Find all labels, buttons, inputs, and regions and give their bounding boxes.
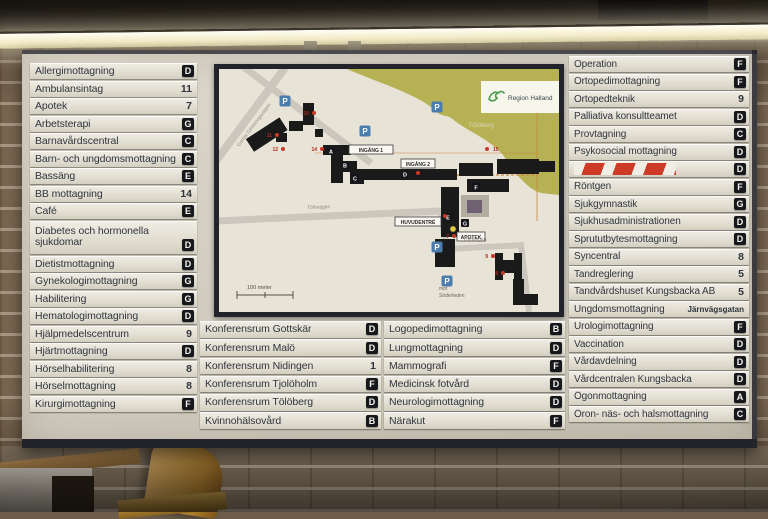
location-badge: 9: [738, 93, 746, 105]
svg-text:9: 9: [485, 254, 488, 260]
department-label: Medicinsk fotvård: [389, 378, 469, 390]
directory-row: D: [569, 161, 749, 177]
directory-row: Urologimottagning F: [569, 319, 749, 335]
location-badge: 11: [181, 83, 194, 95]
directory-row: Hörselhabilitering 8: [30, 361, 197, 377]
department-label: Dietistmottagning: [35, 258, 114, 270]
directory-row: Bassäng E: [30, 168, 197, 184]
location-badge: E: [182, 170, 194, 182]
department-label: Konferensrum Tjolöholm: [205, 378, 317, 390]
department-label: Mammografi: [389, 360, 446, 372]
directory-row: Kvinnohälsovård B: [200, 412, 381, 429]
directory-row: Barn- och ungdomsmottagning C: [30, 151, 197, 167]
location-badge: D: [182, 345, 194, 357]
department-label: Bassäng: [35, 170, 75, 182]
location-badge: D: [182, 258, 194, 270]
directory-row: Ortopedteknik 9: [569, 91, 749, 107]
directory-row: Hjärtmottagning D: [30, 343, 197, 359]
location-badge: F: [366, 378, 378, 390]
directory-row: Vårdavdelning D: [569, 354, 749, 370]
location-badge: D: [734, 111, 746, 123]
location-badge: D: [182, 310, 194, 322]
location-badge: D: [734, 216, 746, 228]
location-badge: D: [366, 323, 378, 335]
location-badge: F: [734, 58, 746, 70]
directory-row: Arbetsterapi G: [30, 116, 197, 132]
location-badge: C: [734, 408, 746, 420]
svg-text:INGÅNG 1: INGÅNG 1: [359, 147, 383, 154]
department-label: Apotek: [35, 100, 67, 112]
department-label: Kvinnohälsovård: [205, 415, 281, 427]
department-label: Konferensrum Nidingen: [205, 360, 313, 372]
department-label: Urologimottagning: [574, 321, 653, 332]
department-label: Ungdomsmottagning: [574, 304, 665, 315]
location-badge: Järnvägsgatan: [688, 305, 746, 314]
department-label: Ortopedteknik: [574, 94, 635, 105]
svg-text:A: A: [329, 150, 333, 156]
location-badge: D: [550, 342, 562, 354]
directory-row: Konferensrum Tölöberg D: [200, 394, 381, 411]
location-badge: 14: [180, 188, 194, 200]
directory-row: Ortopedimottagning F: [569, 74, 749, 90]
directory-row: Konferensrum Nidingen 1: [200, 358, 381, 375]
department-label: Hörselhabilitering: [35, 363, 114, 375]
directory-column-bottom-right: Logopedimottagning B Lungmottagning D Ma…: [384, 321, 565, 431]
directory-row: Barnavårdscentral C: [30, 133, 197, 149]
department-label: Vaccination: [574, 339, 624, 350]
svg-text:C: C: [353, 177, 357, 183]
location-badge: B: [366, 415, 378, 427]
directory-row: Allergimottagning D: [30, 63, 197, 79]
department-label: Palliativa konsultteamet: [574, 111, 677, 122]
department-label: Operation: [574, 59, 617, 70]
directory-row: Sjukhusadministrationen D: [569, 214, 749, 230]
entrance2-label: INGÅNG 2: [401, 159, 435, 168]
svg-text:100 meter: 100 meter: [247, 285, 272, 291]
svg-text:Tölövägen: Tölövägen: [463, 237, 487, 243]
department-label: Ambulansintag: [35, 83, 103, 95]
svg-text:Region Halland: Region Halland: [508, 95, 553, 102]
location-badge: 9: [186, 328, 194, 340]
department-label: Sjukgymnastik: [574, 199, 637, 210]
location-badge: A: [734, 391, 746, 403]
location-badge: G: [182, 293, 194, 305]
department-label: Tandreglering: [574, 269, 633, 280]
main-entrance-label: HUVUDENTRÉ: [395, 217, 441, 226]
directory-row: Kirurgimottagning F: [30, 396, 197, 412]
directory-row: Ögonmottagning A: [569, 389, 749, 405]
department-label: Sprututbytesmottagning: [574, 234, 677, 245]
svg-text:HUVUDENTRÉ: HUVUDENTRÉ: [401, 218, 436, 226]
department-label: Habilitering: [35, 293, 86, 305]
location-badge: G: [182, 118, 194, 130]
svg-text:P: P: [434, 103, 440, 112]
department-label: Hematologimottagning: [35, 310, 138, 322]
directory-row: Mammografi F: [384, 358, 565, 375]
svg-text:mot: mot: [439, 286, 448, 292]
department-label: Hjärtmottagning: [35, 345, 108, 357]
location-badge: 7: [186, 100, 194, 112]
location-badge: C: [734, 128, 746, 140]
directory-row: Vaccination D: [569, 336, 749, 352]
svg-text:INGÅNG 2: INGÅNG 2: [406, 161, 430, 168]
directory-row: Sprututbytesmottagning D: [569, 231, 749, 247]
directory-row: Habilitering G: [30, 291, 197, 307]
directory-row: Öron- näs- och halsmottagning C: [569, 406, 749, 422]
location-badge: D: [734, 373, 746, 385]
directory-row: Provtagning C: [569, 126, 749, 142]
location-badge: D: [734, 356, 746, 368]
directory-row: Psykosocial mottagning D: [569, 144, 749, 160]
bus-stop-icon: [450, 226, 456, 232]
board-frame-bottom: [22, 439, 757, 448]
department-label: Konferensrum Malö: [205, 342, 295, 354]
entrance1-label: INGÅNG 1: [349, 145, 393, 154]
department-label: Kirurgimottagning: [35, 398, 116, 410]
directory-row: Lungmottagning D: [384, 339, 565, 356]
location-badge: D: [182, 239, 194, 251]
directory-row: Konferensrum Tjolöholm F: [200, 376, 381, 393]
department-label: Ortopedimottagning: [574, 76, 660, 87]
directory-row: Ambulansintag 11: [30, 81, 197, 97]
department-label: Hjälpmedelscentrum: [35, 328, 129, 340]
location-badge: D: [734, 146, 746, 158]
directory-row: Syncentral 8: [569, 249, 749, 265]
svg-text:12: 12: [272, 147, 278, 153]
department-label: Neurologimottagning: [389, 396, 484, 408]
location-badge: D: [734, 163, 746, 175]
department-label: Psykosocial mottagning: [574, 146, 677, 157]
svg-text:P: P: [444, 277, 450, 286]
location-badge: D: [366, 342, 378, 354]
location-badge: 8: [186, 380, 194, 392]
department-label: Konferensrum Gottskär: [205, 323, 311, 335]
directory-sign-board: Allergimottagning D Ambulansintag 11 Apo…: [22, 50, 757, 448]
location-badge: 8: [738, 251, 746, 263]
entrance-hall-inner: [467, 200, 482, 213]
location-badge: C: [182, 135, 194, 147]
location-badge: 5: [738, 268, 746, 280]
svg-text:P: P: [282, 97, 288, 106]
directory-row: Ungdomsmottagning Järnvägsgatan: [569, 301, 749, 317]
board-frame-right: [752, 50, 757, 448]
ceiling-beam: [598, 0, 708, 20]
location-badge: C: [182, 153, 194, 165]
department-label: Gynekologimottagning: [35, 275, 137, 287]
department-label: Vårdavdelning: [574, 356, 637, 367]
directory-row: Café E: [30, 203, 197, 219]
map-panel: Tölöberg: [214, 64, 564, 317]
directory-column-right: Operation F Ortopedimottagning F Ortoped…: [569, 56, 749, 424]
department-label: Syncentral: [574, 251, 620, 262]
department-label: Sjukhusadministrationen: [574, 216, 681, 227]
department-label: Allergimottagning: [35, 65, 114, 77]
svg-text:Söderleden: Söderleden: [439, 293, 465, 299]
svg-text:Tölövägen: Tölövägen: [307, 204, 331, 211]
svg-text:B: B: [343, 164, 347, 170]
location-badge: 5: [738, 286, 746, 298]
directory-row: Gynekologimottagning G: [30, 273, 197, 289]
svg-text:P: P: [434, 243, 440, 252]
department-label: Hörselmottagning: [35, 380, 116, 392]
location-badge: 8: [186, 363, 194, 375]
directory-row: Palliativa konsultteamet D: [569, 109, 749, 125]
directory-column-bottom-left: Konferensrum Gottskär D Konferensrum Mal…: [200, 321, 381, 431]
svg-text:11: 11: [267, 133, 273, 139]
location-badge: G: [182, 275, 194, 287]
department-label: Provtagning: [574, 129, 626, 140]
board-frame-top: [22, 50, 757, 54]
location-badge: D: [734, 233, 746, 245]
directory-row: BB mottagning 14: [30, 186, 197, 202]
directory-column-left: Allergimottagning D Ambulansintag 11 Apo…: [30, 63, 197, 413]
site-map: Tölöberg: [219, 69, 559, 312]
department-label: Vårdcentralen Kungsbacka: [574, 374, 692, 385]
svg-text:8: 8: [495, 271, 498, 277]
directory-row: Sjukgymnastik G: [569, 196, 749, 212]
directory-row: Medicinsk fotvård D: [384, 376, 565, 393]
location-badge: E: [182, 205, 194, 217]
location-badge: 1: [370, 360, 378, 372]
department-label: Barnavårdscentral: [35, 135, 119, 147]
directory-row: Konferensrum Gottskär D: [200, 321, 381, 338]
location-badge: D: [550, 378, 562, 390]
department-label: Konferensrum Tölöberg: [205, 396, 313, 408]
location-badge: F: [734, 76, 746, 88]
department-label: Barn- och ungdomsmottagning: [35, 153, 176, 165]
table-opening: [52, 476, 94, 512]
directory-row: Diabetes och hormonella sjukdomar D: [30, 221, 197, 255]
svg-text:15: 15: [493, 147, 499, 153]
directory-row: Hjälpmedelscentrum 9: [30, 326, 197, 342]
location-badge: D: [550, 396, 562, 408]
department-label: Ögonmottagning: [574, 391, 647, 402]
department-label: Öron- näs- och halsmottagning: [574, 409, 708, 420]
location-badge: D: [734, 338, 746, 350]
location-badge: F: [182, 398, 194, 410]
location-badge: G: [734, 198, 746, 210]
location-badge: F: [550, 415, 562, 427]
department-label: Logopedimottagning: [389, 323, 482, 335]
directory-row: Operation F: [569, 56, 749, 72]
directory-row: Konferensrum Malö D: [200, 339, 381, 356]
hill-label: Tölöberg: [468, 122, 494, 129]
directory-row: Närakut F: [384, 412, 565, 429]
directory-row: Tandreglering 5: [569, 266, 749, 282]
svg-text:P: P: [362, 127, 368, 136]
location-badge: D: [182, 65, 194, 77]
directory-row: Vårdcentralen Kungsbacka D: [569, 371, 749, 387]
location-badge: D: [366, 396, 378, 408]
directory-row: Dietistmottagning D: [30, 256, 197, 272]
region-halland-logo: Region Halland: [481, 81, 559, 113]
department-label: Tandvårdshuset Kungsbacka AB: [574, 286, 715, 297]
directory-row: Röntgen F: [569, 179, 749, 195]
department-label: BB mottagning: [35, 188, 103, 200]
directory-row: Logopedimottagning B: [384, 321, 565, 338]
department-label: Närakut: [389, 415, 425, 427]
svg-text:D: D: [403, 173, 407, 179]
hazard-stripes: [574, 163, 676, 175]
location-badge: B: [550, 323, 562, 335]
location-badge: F: [550, 360, 562, 372]
department-label: Café: [35, 205, 57, 217]
department-label: Arbetsterapi: [35, 118, 90, 130]
svg-text:7: 7: [446, 234, 449, 240]
department-label: Röntgen: [574, 181, 611, 192]
department-label: Lungmottagning: [389, 342, 463, 354]
directory-row: Neurologimottagning D: [384, 394, 565, 411]
svg-text:G: G: [463, 222, 467, 228]
location-badge: F: [734, 321, 746, 333]
directory-row: Hematologimottagning D: [30, 308, 197, 324]
department-label: Diabetes och hormonella sjukdomar: [35, 226, 157, 248]
svg-text:10: 10: [303, 111, 309, 117]
svg-text:14: 14: [311, 147, 317, 153]
location-badge: F: [734, 181, 746, 193]
directory-row: Apotek 7: [30, 98, 197, 114]
directory-row: Hörselmottagning 8: [30, 378, 197, 394]
directory-row: Tandvårdshuset Kungsbacka AB 5: [569, 284, 749, 300]
